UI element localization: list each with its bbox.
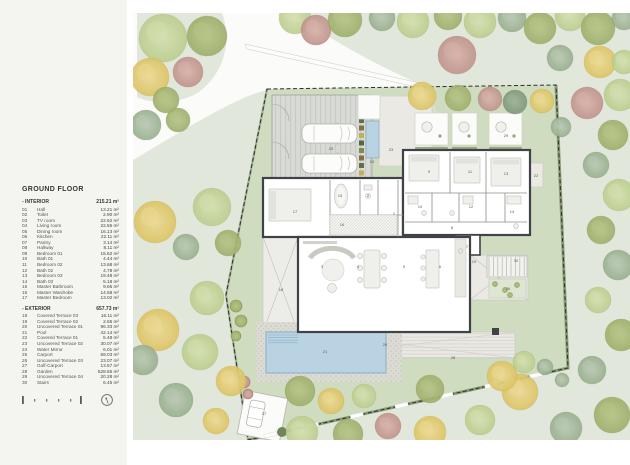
room-number: 30 xyxy=(514,258,519,263)
bush xyxy=(230,300,242,312)
room-number: 26 xyxy=(506,286,511,291)
room-number: 10 xyxy=(418,204,423,209)
row-area: 13.02 m² xyxy=(93,295,119,301)
room-number: 17 xyxy=(293,209,298,214)
stairs xyxy=(487,256,527,277)
room-number: 16 xyxy=(340,222,345,227)
room-number: 12 xyxy=(469,204,474,209)
planter xyxy=(359,141,364,146)
interior-total-row: - INTERIOR 215.21 m² xyxy=(22,199,119,205)
room-number: 24 xyxy=(370,159,375,164)
room-number: 13 xyxy=(504,171,509,176)
counter xyxy=(455,239,466,297)
legend-panel: GROUND FLOOR - INTERIOR 215.21 m² 01Hall… xyxy=(0,0,127,465)
north-compass-icon xyxy=(100,393,114,407)
legend-row: 17Master Bedroom13.02 m² xyxy=(22,295,119,301)
room-number: 18 xyxy=(279,287,284,292)
scale-bar-icon xyxy=(22,395,84,405)
room-number: 21 xyxy=(323,349,328,354)
room-number: 25 xyxy=(329,146,334,151)
dining-table xyxy=(364,250,380,288)
legend: GROUND FLOOR - INTERIOR 215.21 m² 01Hall… xyxy=(22,186,119,407)
water-mirror xyxy=(366,121,379,158)
row-area: 6.45 m² xyxy=(93,380,119,386)
planter xyxy=(359,171,364,176)
planter xyxy=(359,156,364,161)
planter xyxy=(359,148,364,153)
exterior-total: 657.73 m² xyxy=(96,306,119,312)
planter xyxy=(359,133,364,138)
car-icon xyxy=(302,123,357,145)
room-number: 22 xyxy=(534,173,539,178)
room-number: 15 xyxy=(338,193,343,198)
interior-total: 215.21 m² xyxy=(96,199,119,205)
room-number: 27 xyxy=(262,411,267,416)
planter xyxy=(359,126,364,131)
row-name: Master Bedroom xyxy=(37,295,93,301)
room-number: 28 xyxy=(451,355,456,360)
rug xyxy=(322,259,344,281)
interior-rows: 01Hall13.21 m²02Toilet2.90 m²03TV room22… xyxy=(22,207,119,301)
tv xyxy=(303,241,337,244)
room-number: 29 xyxy=(504,133,509,138)
interior-label: - INTERIOR xyxy=(22,199,49,205)
exterior-rows: 18Covered Terrace 0316.11 m²19Covered Te… xyxy=(22,313,119,385)
kitchen-island xyxy=(426,250,439,288)
row-name: Stairs xyxy=(37,380,93,386)
bush xyxy=(231,331,241,341)
row-number: 30 xyxy=(22,380,37,386)
legend-title: GROUND FLOOR xyxy=(22,186,119,193)
room-number: 19 xyxy=(472,259,477,264)
exterior-total-row: - EXTERIOR 657.73 m² xyxy=(22,306,119,312)
bush xyxy=(243,389,253,399)
room-number: 20 xyxy=(383,342,388,347)
room-number: 14 xyxy=(510,209,515,214)
legend-row: 30Stairs6.45 m² xyxy=(22,380,119,386)
shower xyxy=(463,196,473,204)
room-number: 23 xyxy=(389,147,394,152)
exterior-label: - EXTERIOR xyxy=(22,306,51,312)
bush xyxy=(235,315,247,327)
car-icon xyxy=(302,153,357,175)
planter xyxy=(359,163,364,168)
row-number: 17 xyxy=(22,295,37,301)
legend-footer xyxy=(22,393,119,407)
shower xyxy=(408,196,418,204)
